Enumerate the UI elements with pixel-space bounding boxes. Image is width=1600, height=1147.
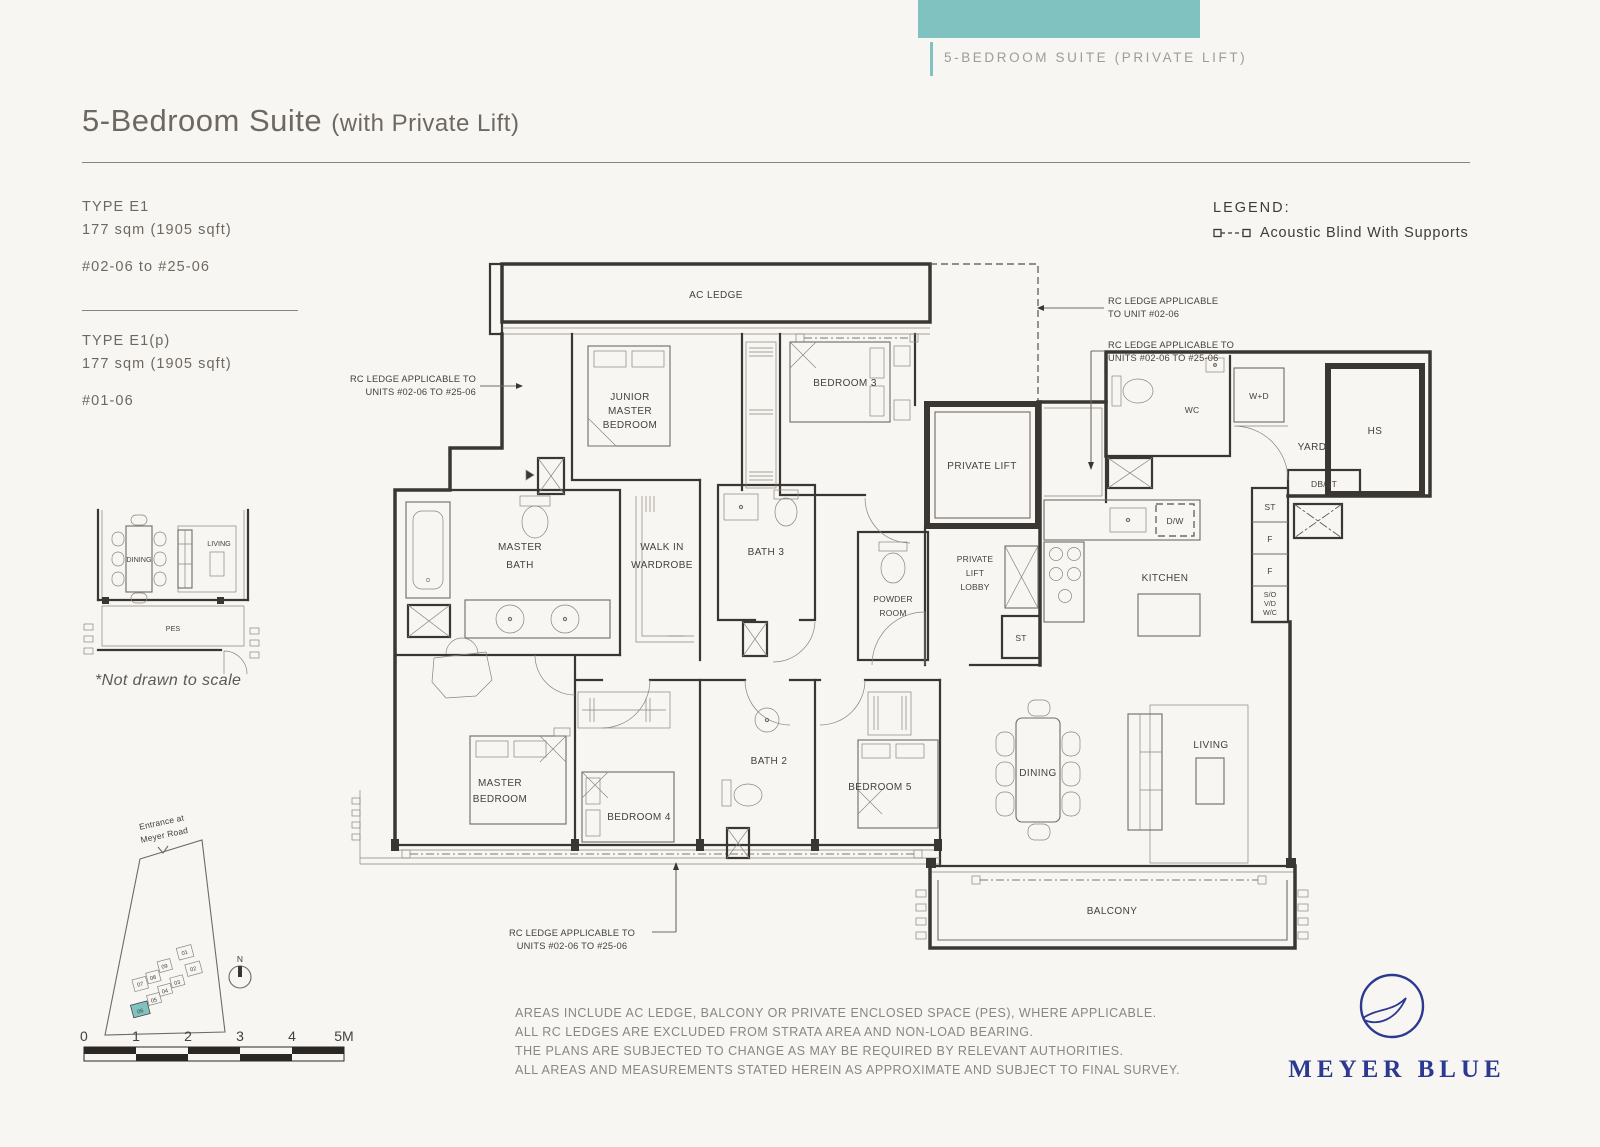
label-bath2: BATH 2 [751, 756, 788, 767]
svg-text:UNITS #02-06 TO #25-06: UNITS #02-06 TO #25-06 [1108, 353, 1219, 363]
scale-0: 0 [80, 1028, 88, 1044]
brand-name: MEYER BLUE [1282, 1056, 1512, 1084]
label-so-2: V/D [1264, 599, 1276, 608]
label-living: LIVING [1193, 740, 1228, 751]
page-title-suffix: (with Private Lift) [331, 110, 519, 137]
rc-annotation-bottom: RC LEDGE APPLICABLE TO UNITS #02-06 TO #… [509, 862, 679, 951]
label-f1: F [1267, 534, 1272, 544]
label-lobby-2: LIFT [966, 568, 984, 578]
scale-4: 4 [288, 1028, 296, 1044]
plan-annotations: RC LEDGE APPLICABLE TO UNITS #02-06 TO #… [350, 296, 1234, 951]
building-cluster: 01 02 03 04 05 06 07 08 09 [119, 944, 209, 1018]
svg-text:RC LEDGE APPLICABLE TO: RC LEDGE APPLICABLE TO [509, 928, 635, 938]
thumbnail-living-set [178, 526, 236, 592]
legend-heading: LEGEND: [1213, 200, 1469, 216]
wc-fittings [1112, 358, 1224, 406]
label-f2: F [1267, 566, 1272, 576]
label-master-bedroom-1: MASTER [478, 778, 522, 789]
scale-1: 1 [132, 1028, 140, 1044]
scale-3: 3 [236, 1028, 244, 1044]
disclaimer-line-1: AREAS INCLUDE AC LEDGE, BALCONY OR PRIVA… [515, 1004, 1180, 1023]
label-powder-2: ROOM [879, 608, 906, 618]
furniture [406, 342, 1284, 863]
thumbnail-pes-label: PES [166, 624, 181, 633]
unit-type-1: TYPE E1 177 sqm (1905 sqft) [82, 196, 232, 242]
label-master-bath-2: BATH [506, 560, 534, 571]
unit-type-2-name: TYPE E1(p) [82, 330, 232, 353]
label-so-1: S/O [1264, 590, 1277, 599]
label-balcony: BALCONY [1087, 906, 1138, 917]
unit-type-1-name: TYPE E1 [82, 196, 232, 219]
disclaimer-line-3: THE PLANS ARE SUBJECTED TO CHANGE AS MAY… [515, 1042, 1180, 1061]
svg-text:UNITS #02-06 TO #25-06: UNITS #02-06 TO #25-06 [517, 941, 628, 951]
label-so-3: W/C [1263, 608, 1277, 617]
label-st-col: ST [1264, 502, 1275, 512]
powder-fittings [879, 542, 907, 583]
unit-01: 01 [181, 950, 189, 957]
entrance-label: Entrance at Meyer Road [137, 812, 189, 845]
page: 5-BEDROOM SUITE (PRIVATE LIFT) 5-Bedroom… [0, 0, 1600, 1147]
thumbnail-living-label: LIVING [207, 539, 231, 548]
compass: N [229, 954, 251, 988]
scale-2: 2 [184, 1028, 192, 1044]
label-hs: HS [1368, 426, 1383, 437]
unit-08: 08 [149, 975, 157, 982]
disclaimer-line-4: ALL AREAS AND MEASUREMENTS STATED HEREIN… [515, 1061, 1180, 1080]
left-divider [82, 310, 298, 311]
label-walkin-1: WALK IN [640, 542, 684, 553]
unit-type-1-units: #02-06 to #25-06 [82, 256, 210, 279]
thumbnail-dining-label: DINING [126, 555, 152, 564]
rc-annotation-top-right: RC LEDGE APPLICABLE TO UNIT #02-06 [1037, 296, 1218, 319]
header-teal-block [918, 0, 1200, 38]
label-bedroom4: BEDROOM 4 [607, 812, 671, 823]
page-title-main: 5-Bedroom Suite [82, 103, 322, 138]
scale-note: *Not drawn to scale [95, 672, 241, 690]
label-st-lobby: ST [1015, 633, 1026, 643]
title-divider [82, 162, 1470, 163]
svg-text:RC LEDGE APPLICABLE TO: RC LEDGE APPLICABLE TO [1108, 340, 1234, 350]
site-boundary [105, 840, 225, 1035]
label-wd: W+D [1249, 391, 1269, 401]
pes-thumbnail-plan: DINING LIVING PES [78, 498, 263, 678]
label-dbst: DB/ST [1311, 479, 1337, 489]
label-private-lift: PRIVATE LIFT [947, 461, 1016, 472]
unit-type-2-area: 177 sqm (1905 sqft) [82, 353, 232, 376]
legend: LEGEND: Acoustic Blind With Supports [1213, 200, 1469, 241]
hall-cabinet [746, 342, 776, 488]
label-lobby-1: PRIVATE [957, 554, 994, 564]
label-lobby-3: LOBBY [960, 582, 989, 592]
scale-bar-segments [84, 1047, 344, 1061]
living-set [1128, 705, 1248, 863]
unit-type-2: TYPE E1(p) 177 sqm (1905 sqft) [82, 330, 232, 376]
label-dining: DINING [1019, 768, 1056, 779]
header-tab-label: 5-BEDROOM SUITE (PRIVATE LIFT) [944, 50, 1247, 65]
page-title: 5-Bedroom Suite (with Private Lift) [82, 103, 519, 139]
acoustic-blind-lines [402, 334, 1266, 884]
label-walkin-2: WARDROBE [631, 560, 693, 571]
scale-bar: 0 1 2 3 4 5M [78, 1028, 358, 1072]
floor-plan: AC LEDGE JUNIOR MASTER BEDROOM BEDROOM 3… [350, 250, 1470, 970]
unit-07: 07 [137, 981, 145, 988]
unit-09: 09 [161, 963, 169, 970]
label-yard: YARD [1298, 442, 1327, 453]
label-bath3: BATH 3 [748, 547, 785, 558]
compass-north-label: N [237, 954, 243, 964]
label-ac-ledge: AC LEDGE [689, 290, 743, 301]
legend-item-label: Acoustic Blind With Supports [1260, 225, 1469, 241]
svg-text:TO UNIT #02-06: TO UNIT #02-06 [1108, 309, 1179, 319]
svg-text:RC LEDGE APPLICABLE: RC LEDGE APPLICABLE [1108, 296, 1218, 306]
disclaimer: AREAS INCLUDE AC LEDGE, BALCONY OR PRIVA… [515, 1004, 1180, 1080]
service-boxes [408, 458, 1342, 858]
site-map: Entrance at Meyer Road 01 02 03 04 05 [88, 795, 263, 1045]
disclaimer-line-2: ALL RC LEDGES ARE EXCLUDED FROM STRATA A… [515, 1023, 1180, 1042]
label-master-bath-1: MASTER [498, 542, 542, 553]
unit-02: 02 [190, 966, 198, 973]
svg-text:UNITS #02-06 TO #25-06: UNITS #02-06 TO #25-06 [365, 387, 476, 397]
label-master-bedroom-2: BEDROOM [473, 794, 527, 805]
label-wc: WC [1185, 405, 1200, 415]
label-bedroom5: BEDROOM 5 [848, 782, 912, 793]
bedroom5-furniture [858, 692, 938, 828]
svg-text:RC LEDGE APPLICABLE TO: RC LEDGE APPLICABLE TO [350, 374, 476, 384]
unit-type-2-units: #01-06 [82, 390, 134, 413]
label-junior-3: BEDROOM [603, 420, 657, 431]
label-junior-1: JUNIOR [610, 392, 650, 403]
header-teal-bar [930, 42, 933, 76]
label-kitchen: KITCHEN [1142, 573, 1189, 584]
meyer-blue-logo-icon [1340, 958, 1450, 1053]
label-dw: D/W [1166, 516, 1183, 526]
label-junior-2: MASTER [608, 406, 652, 417]
rc-annotation-left: RC LEDGE APPLICABLE TO UNITS #02-06 TO #… [350, 374, 523, 397]
rc-annotation-right: RC LEDGE APPLICABLE TO UNITS #02-06 TO #… [1088, 340, 1234, 470]
scale-5m: 5M [334, 1028, 353, 1044]
label-powder-1: POWDER [873, 594, 912, 604]
label-bedroom3: BEDROOM 3 [813, 378, 877, 389]
acoustic-blind-icon [1213, 228, 1251, 238]
unit-type-1-area: 177 sqm (1905 sqft) [82, 219, 232, 242]
